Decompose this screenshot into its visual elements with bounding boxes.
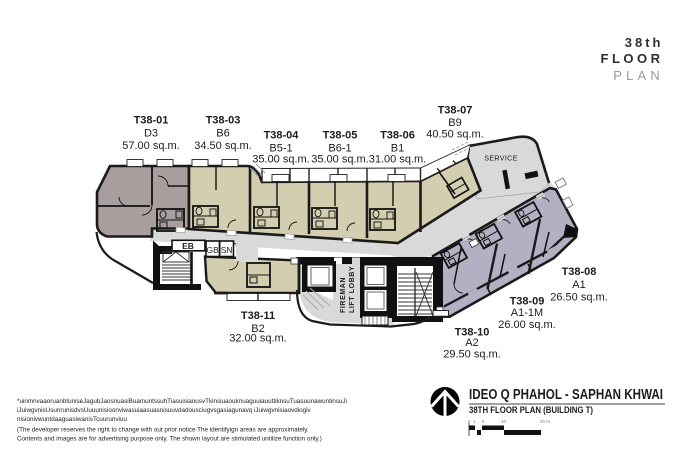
svg-text:GB: GB: [207, 245, 220, 255]
svg-text:10: 10: [501, 419, 507, 424]
svg-text:iJuiwgvnisUsunrunisdvsUuuunisi: iJuiwgvnisUsunrunisdvsUuuunisioonviwasui…: [17, 407, 312, 414]
svg-text:T38-08: T38-08: [562, 266, 597, 278]
svg-text:38th: 38th: [625, 35, 664, 50]
svg-text:T38-09: T38-09: [510, 296, 545, 308]
svg-text:LIFT LOBBY: LIFT LOBBY: [349, 266, 356, 313]
svg-text:T38-01: T38-01: [134, 115, 169, 127]
svg-text:FLOOR: FLOOR: [601, 51, 664, 66]
svg-text:B9: B9: [448, 117, 461, 129]
svg-text:38TH FLOOR PLAN (BUILDING T): 38TH FLOOR PLAN (BUILDING T): [469, 405, 593, 416]
svg-text:T38-11: T38-11: [241, 310, 275, 322]
svg-text:(The developer reserves the r: (The developer reserves the right to cha…: [17, 427, 309, 434]
svg-text:20 m.: 20 m.: [540, 419, 551, 424]
svg-text:31.00 sq.m.: 31.00 sq.m.: [369, 154, 426, 166]
svg-text:57.00 sq.m.: 57.00 sq.m.: [122, 140, 179, 152]
svg-text:T38-06: T38-06: [380, 130, 415, 142]
svg-text:32.00 sq.m.: 32.00 sq.m.: [229, 333, 286, 345]
svg-text:EB: EB: [182, 241, 194, 251]
svg-text:FIREMAN: FIREMAN: [340, 277, 347, 313]
svg-text:A2: A2: [465, 337, 478, 349]
svg-text:PLAN: PLAN: [613, 68, 664, 83]
svg-text:26.50 sq.m.: 26.50 sq.m.: [550, 292, 607, 304]
svg-text:T38-03: T38-03: [206, 115, 241, 127]
svg-text:34.50 sq.m.: 34.50 sq.m.: [194, 140, 251, 152]
svg-text:*uinmnvaaoruanbtuniseJagubJaos: *uinmnvaaoruanbtuniseJagubJaosnuasiBuamu…: [17, 398, 347, 405]
svg-text:T38-05: T38-05: [323, 130, 358, 142]
svg-text:T38-04: T38-04: [264, 130, 300, 142]
svg-text:SERVICE: SERVICE: [484, 154, 518, 163]
svg-text:IDEO Q PHAHOL - SAPHAN KHWAI: IDEO Q PHAHOL - SAPHAN KHWAI: [469, 387, 663, 403]
svg-text:35.00 sq.m.: 35.00 sq.m.: [311, 154, 368, 166]
svg-text:29.50 sq.m.: 29.50 sq.m.: [443, 349, 500, 361]
svg-text:A1: A1: [572, 279, 585, 291]
svg-text:40.50 sq.m.: 40.50 sq.m.: [426, 129, 483, 141]
svg-text:nisionivwuntdaaguasiwanisTcuur: nisionivwuntdaaguasiwanisTcuurunviuu: [17, 416, 127, 423]
svg-text:B6: B6: [216, 128, 229, 140]
svg-text:26.00 sq.m.: 26.00 sq.m.: [498, 319, 555, 331]
svg-text:A1-1M: A1-1M: [511, 307, 543, 319]
svg-text:T38-07: T38-07: [438, 105, 473, 117]
svg-text:D3: D3: [144, 128, 158, 140]
svg-text:SN: SN: [221, 245, 233, 255]
svg-text:Contents and images are for ad: Contents and images are for advertising …: [17, 436, 322, 443]
svg-text:35.00 sq.m.: 35.00 sq.m.: [252, 154, 309, 166]
